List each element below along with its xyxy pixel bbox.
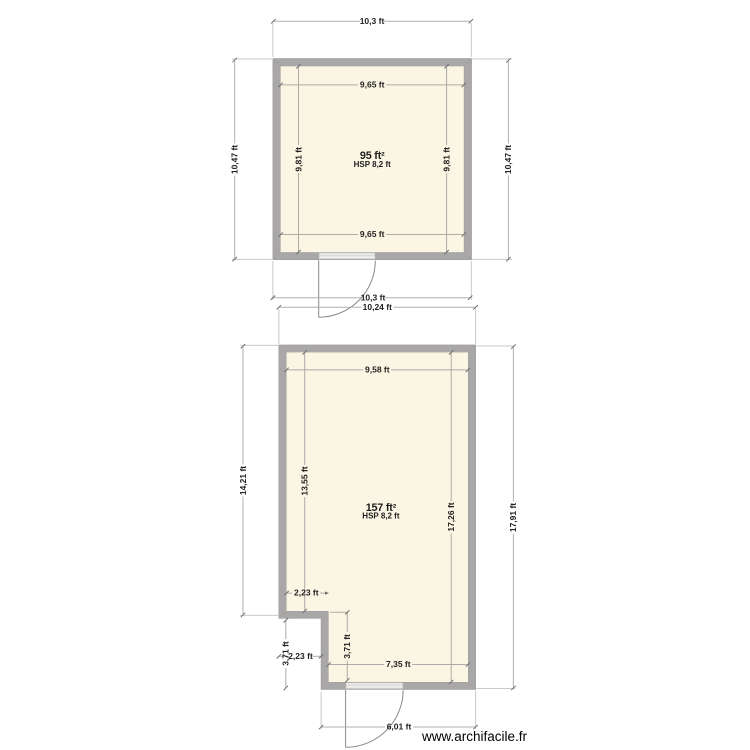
svg-text:HSP 8,2 ft: HSP 8,2 ft: [354, 160, 392, 169]
svg-text:17,91 ft: 17,91 ft: [508, 503, 518, 532]
svg-text:9,65 ft: 9,65 ft: [360, 79, 385, 89]
svg-text:2,23 ft: 2,23 ft: [294, 588, 319, 598]
svg-text:9,65 ft: 9,65 ft: [360, 229, 385, 239]
svg-text:HSP 8,2 ft: HSP 8,2 ft: [362, 512, 400, 521]
svg-text:www.archifacile.fr: www.archifacile.fr: [421, 729, 528, 744]
svg-text:17,26 ft: 17,26 ft: [446, 502, 456, 531]
svg-text:9,81 ft: 9,81 ft: [293, 147, 303, 172]
svg-text:3,71 ft: 3,71 ft: [342, 634, 352, 659]
svg-text:9,81 ft: 9,81 ft: [441, 147, 451, 172]
svg-text:3,71 ft: 3,71 ft: [281, 641, 291, 666]
svg-text:10,3 ft: 10,3 ft: [361, 292, 386, 302]
svg-text:10,3 ft: 10,3 ft: [360, 16, 385, 26]
svg-text:10,47 ft: 10,47 ft: [230, 145, 240, 174]
svg-text:14,21 ft: 14,21 ft: [238, 466, 248, 495]
svg-text:9,58 ft: 9,58 ft: [365, 364, 390, 374]
svg-text:2,23 ft: 2,23 ft: [288, 651, 313, 661]
svg-text:10,47 ft: 10,47 ft: [503, 145, 513, 174]
svg-text:10,24 ft: 10,24 ft: [363, 302, 392, 312]
svg-text:7,35 ft: 7,35 ft: [386, 659, 411, 669]
svg-text:6,01 ft: 6,01 ft: [387, 722, 412, 732]
svg-text:13,55 ft: 13,55 ft: [300, 466, 310, 495]
